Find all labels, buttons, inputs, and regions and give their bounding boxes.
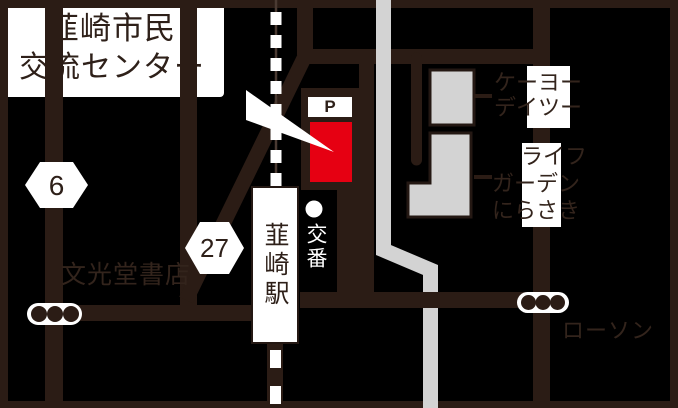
keiyo-d2-line2: デイツー bbox=[494, 95, 582, 120]
police-box-dot bbox=[306, 201, 323, 218]
keiyo-d2-building bbox=[430, 70, 474, 125]
police-box-label: 交番 bbox=[302, 219, 328, 275]
life-garden-line2: ガーデン bbox=[492, 170, 587, 197]
bookstore-label: 文光堂書店 bbox=[61, 255, 191, 291]
railway-lower bbox=[267, 343, 283, 408]
life-garden-label: ライフ ガーデン にらさき bbox=[492, 143, 587, 224]
parking-label: P bbox=[308, 97, 352, 117]
traffic-signal-right bbox=[517, 292, 569, 313]
life-garden-line1: ライフ bbox=[492, 143, 587, 170]
road-lawson-horizontal bbox=[300, 292, 550, 308]
railway-upper bbox=[271, 0, 282, 188]
life-garden-leader-tick bbox=[474, 175, 492, 179]
keiyo-d2-line1: ケーヨー bbox=[494, 70, 582, 95]
station-name: 韮崎駅 bbox=[252, 187, 298, 343]
keiyo-d2-label: ケーヨー デイツー bbox=[494, 70, 582, 120]
traffic-signal-left bbox=[27, 303, 82, 325]
destination-building bbox=[310, 122, 352, 182]
access-map: 韮崎市民 交流センター 6 27 P 韮崎駅 交番 文光堂書店 ローソン ケーヨ… bbox=[0, 0, 678, 408]
road-top-stub-vertical bbox=[297, 0, 313, 55]
keiyo-d2-leader-tick bbox=[474, 94, 492, 98]
life-garden-line3: にらさき bbox=[492, 197, 587, 224]
route27-number: 27 bbox=[189, 233, 240, 264]
road-top-horizontal bbox=[300, 49, 550, 64]
route6-number: 6 bbox=[31, 169, 82, 202]
road-mid-vertical-lower bbox=[337, 180, 374, 300]
lawson-label: ローソン bbox=[562, 313, 654, 345]
